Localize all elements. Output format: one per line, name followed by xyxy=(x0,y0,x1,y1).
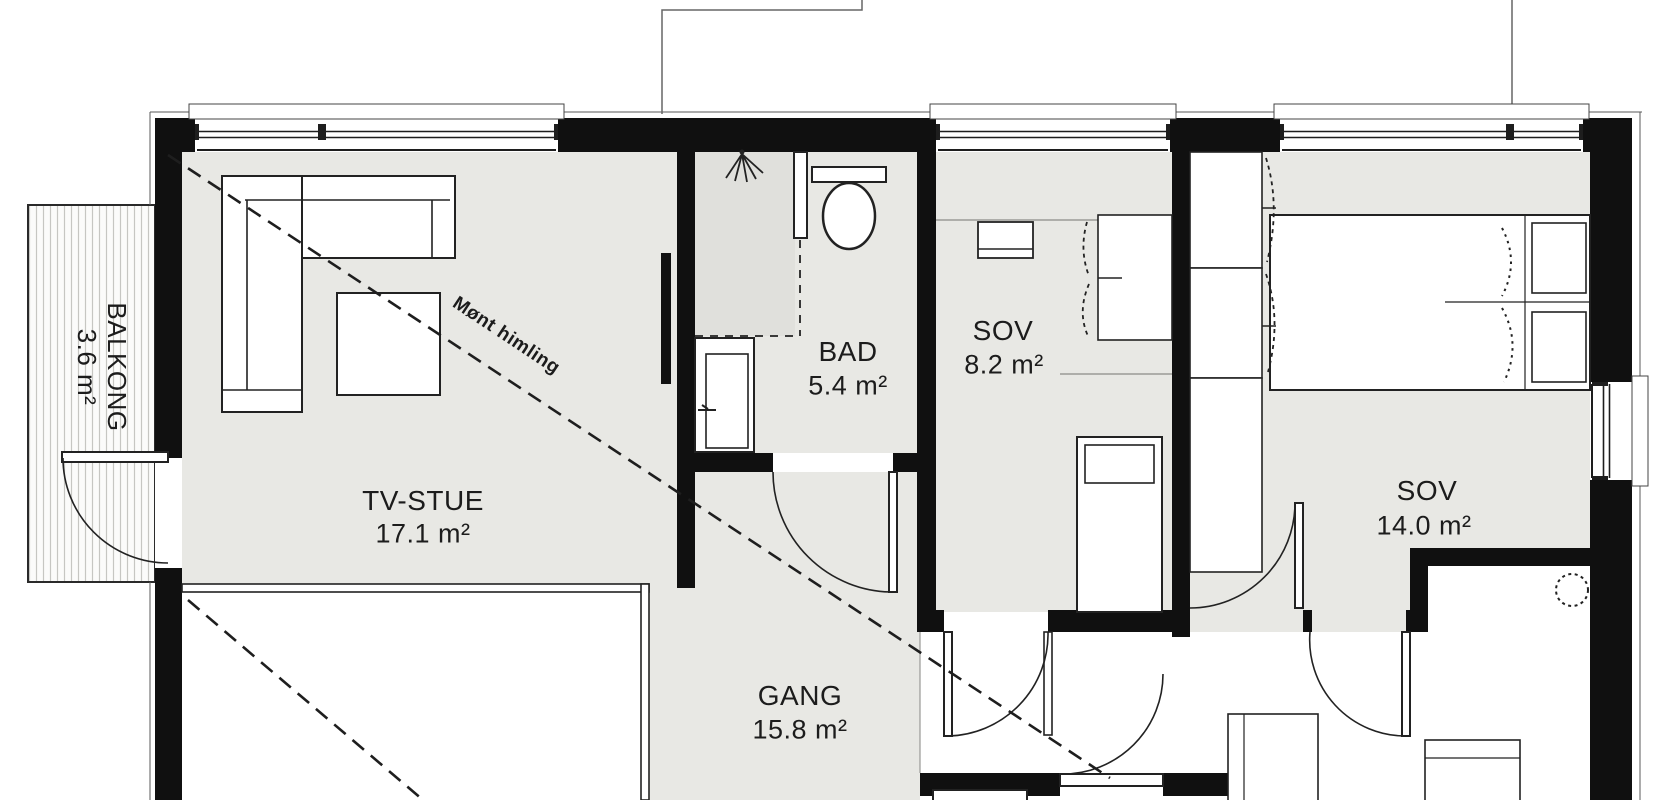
bed-sov2 xyxy=(1270,215,1590,390)
room-area-tv-stue: 17.1 m² xyxy=(375,518,470,549)
room-area-sov-2: 14.0 m² xyxy=(1376,510,1471,541)
room-label-sov-2: SOV xyxy=(1397,475,1458,507)
fixture-bottom-right-1 xyxy=(1228,714,1318,800)
coffee-table xyxy=(337,293,440,395)
callout-line-left xyxy=(662,0,862,114)
room-label-balkong: BALKONG 3.6 m² xyxy=(71,302,131,431)
room-label-sov-1: SOV xyxy=(973,315,1034,347)
balkong-area: 3.6 m² xyxy=(71,302,101,431)
fixture-bottom-right-2 xyxy=(1425,740,1520,800)
balkong-name: BALKONG xyxy=(101,302,131,431)
fixture-bottom-middle xyxy=(933,790,1027,800)
room-area-bad: 5.4 m² xyxy=(808,370,888,401)
floor-plan: TV-STUE 17.1 m² BAD 5.4 m² SOV 8.2 m² SO… xyxy=(0,0,1670,800)
sink-vanity xyxy=(695,338,754,452)
room-label-gang: GANG xyxy=(758,680,842,712)
room-area-sov-1: 8.2 m² xyxy=(964,349,1044,380)
room-area-gang: 15.8 m² xyxy=(752,714,847,745)
bed-sov1 xyxy=(1077,437,1162,612)
room-label-tv-stue: TV-STUE xyxy=(362,485,484,517)
dresser-sov1 xyxy=(978,222,1033,258)
pocket-door-leaf xyxy=(661,253,671,384)
room-label-bad: BAD xyxy=(818,336,877,368)
